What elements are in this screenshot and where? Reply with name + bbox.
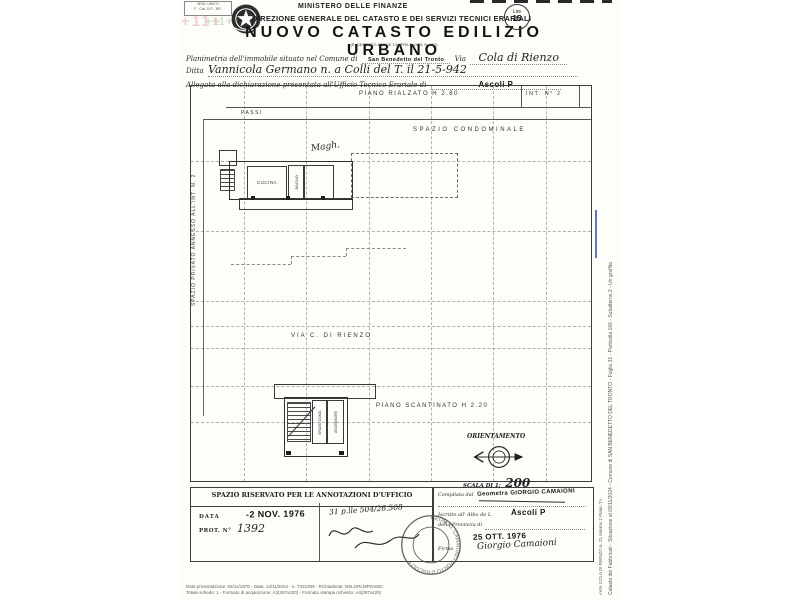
door-tick xyxy=(251,196,255,200)
orientation-label: ORIENTAMENTO xyxy=(467,433,525,440)
condo-label: SPAZIO CONDOMINALE xyxy=(413,127,526,133)
basement-title: PIANO SCANTINATO H 2.20 xyxy=(376,403,488,409)
door-tick xyxy=(321,196,325,200)
date-received-stamp: -2 NOV. 1976 xyxy=(246,508,305,519)
scanned-cadastral-document: { "document": { "corner_box": { "line1":… xyxy=(0,0,800,600)
band-separator xyxy=(579,86,580,107)
basement-room-lift-label: ASCENSORE xyxy=(334,411,338,433)
compass-icon xyxy=(473,442,525,472)
stepped-boundary xyxy=(231,264,291,265)
door-tick xyxy=(286,196,290,200)
revenue-stamp: Lire 15 xyxy=(504,4,530,30)
dotted-rule xyxy=(485,529,585,530)
grid-line xyxy=(191,386,591,387)
basement-room-cond: SPAZIO COND. xyxy=(312,400,327,444)
band-separator xyxy=(521,86,522,107)
round-stamp: GEOM. G. CAMAIONI • PORTO D'ASCOLI • xyxy=(398,512,464,578)
grid-line xyxy=(191,301,591,302)
data-label: DATA xyxy=(199,514,220,520)
door-tick xyxy=(286,451,291,455)
floor-title: PIANO RIALZATO H 2.80 xyxy=(359,91,459,97)
address-margin-line: «VIA COLA DI RIENZO n. 21 Interno 2 Pian… xyxy=(598,420,603,595)
ministry-line: MINISTERO DELLE FINANZE xyxy=(298,3,408,10)
prot-label: PROT. N° xyxy=(199,528,232,534)
balcony-strip xyxy=(239,198,353,210)
torn-edge-marks xyxy=(470,0,612,3)
room-unlabeled xyxy=(304,165,334,199)
room-kitchen: CUCINA xyxy=(247,166,287,199)
stepped-boundary xyxy=(291,256,292,264)
condo-boundary-left xyxy=(203,119,204,416)
archive-margin-line: Catasto dei Fabbricati - Situazione al 0… xyxy=(608,170,614,595)
handwritten-note: Magh. xyxy=(310,140,340,154)
grid-line xyxy=(191,348,591,349)
surveyor-name-stamp: Geometra GIORGIO CAMAIONI xyxy=(477,488,575,497)
print-footer-line2: Totale schede: 1 - Formato di acquisizio… xyxy=(186,590,383,596)
revenue-stamp-value: 15 xyxy=(505,15,529,22)
door-tick xyxy=(339,451,344,455)
corner-code-line2: F - Cat. S.P. - BR. xyxy=(185,7,231,12)
round-stamp-text: GEOM. G. CAMAIONI • PORTO D'ASCOLI • xyxy=(408,515,461,574)
stepped-boundary xyxy=(346,248,406,249)
grid-line xyxy=(191,326,591,327)
compiled-label: Compilata dal xyxy=(438,492,473,498)
kitchen-label: CUCINA xyxy=(257,180,277,185)
basement-room-lift: ASCENSORE xyxy=(327,400,344,444)
office-box-divider xyxy=(319,503,320,561)
private-space-label: SPAZIO PRIVATO ANNESSO ALL'INT. N. 2 xyxy=(191,136,197,306)
room-bath: BAGNO xyxy=(288,165,304,199)
basement-room-cond-label: SPAZIO COND. xyxy=(318,410,322,435)
albo-value-stamp: Ascoli P xyxy=(511,508,546,517)
directorate-line: DIREZIONE GENERALE DEL CATASTO E DEI SER… xyxy=(252,14,531,23)
struck-stamp-line xyxy=(479,500,565,503)
print-footer: Data presentazione: 02/11/1976 - Data: 1… xyxy=(186,584,383,596)
prot-number: 1392 xyxy=(237,522,265,535)
blue-pen-mark xyxy=(595,210,597,258)
svg-text:GEOM. G. CAMAIONI • PORTO D'AS: GEOM. G. CAMAIONI • PORTO D'ASCOLI • xyxy=(408,515,461,574)
grid-line xyxy=(191,422,591,423)
stepped-boundary xyxy=(291,256,346,257)
bath-label: BAGNO xyxy=(294,175,299,189)
decree-line: (R. DECRETO-LEGGE 13 APRILE 1939, N. 652… xyxy=(214,42,574,47)
grid-line xyxy=(191,231,591,232)
form-line-ditta: Ditta Vannicola Germano n. a Colli del T… xyxy=(186,60,602,74)
dotted-rule xyxy=(438,506,586,507)
unit-label: INT. N° 2 xyxy=(526,91,562,97)
stepped-boundary xyxy=(346,248,347,256)
annex-dashed-area xyxy=(351,153,458,198)
plan-sheet: PIANO RIALZATO H 2.80 INT. N° 2 PASSI SP… xyxy=(190,85,592,482)
condo-boundary-top xyxy=(203,119,591,120)
passi-label: PASSI xyxy=(241,110,263,116)
street-label: VIA C. DI RIENZO xyxy=(291,333,372,339)
band-line xyxy=(226,107,591,108)
